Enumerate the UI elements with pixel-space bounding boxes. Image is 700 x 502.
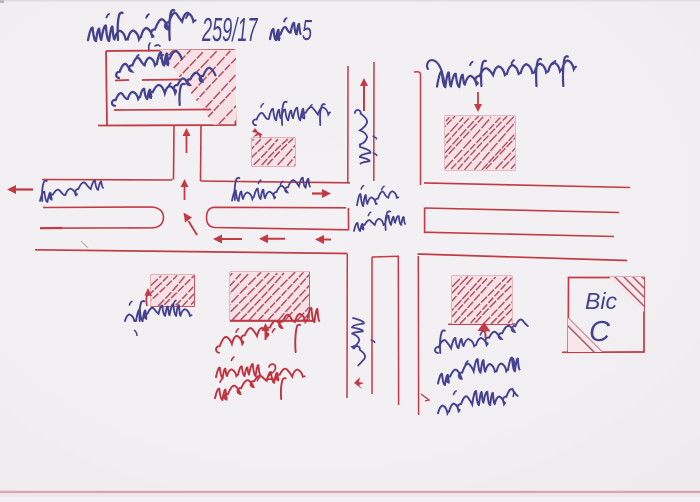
svg-text:259/17: 259/17 <box>201 11 258 48</box>
svg-text:C: C <box>589 316 611 348</box>
svg-text:5: 5 <box>302 15 312 47</box>
svg-text:Bic: Bic <box>585 288 617 314</box>
